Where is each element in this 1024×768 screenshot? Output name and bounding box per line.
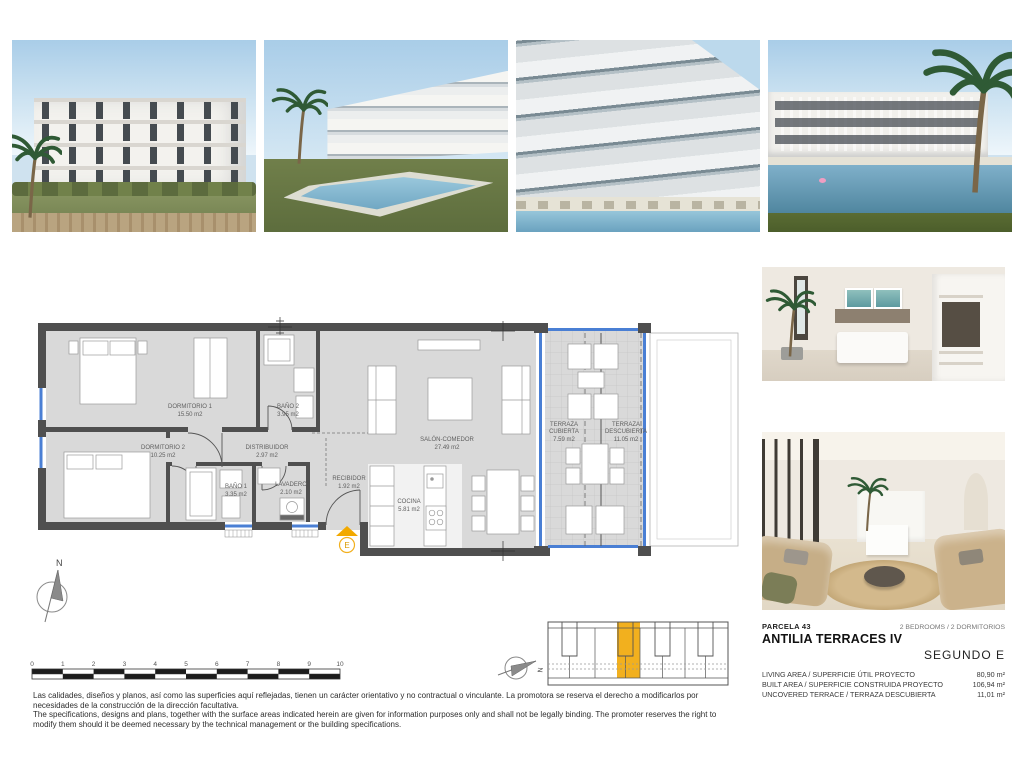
svg-text:10.25 m2: 10.25 m2 bbox=[150, 453, 176, 459]
svg-text:LAVADERO: LAVADERO bbox=[275, 482, 307, 488]
disclaimer-en: The specifications, designs and plans, t… bbox=[33, 710, 733, 729]
svg-text:0: 0 bbox=[30, 661, 34, 668]
area-row-built: BUILT AREA / SUPERFICIE CONSTRUIDA PROYE… bbox=[762, 680, 1005, 690]
cushion bbox=[958, 548, 984, 565]
area-label: UNCOVERED TERRACE / TERRAZA DESCUBIERTA bbox=[762, 690, 936, 700]
svg-text:SALÓN-COMEDOR: SALÓN-COMEDOR bbox=[420, 436, 474, 443]
unit-info-panel: PARCELA 43 2 BEDROOMS / 2 DORMITORIOS AN… bbox=[762, 622, 1005, 701]
svg-text:N: N bbox=[536, 667, 543, 673]
key-plan bbox=[548, 622, 728, 685]
houseplant bbox=[764, 287, 816, 359]
svg-text:DESCUBIERTA: DESCUBIERTA bbox=[605, 429, 647, 435]
photo-terraces-closeup bbox=[516, 40, 760, 232]
room-label-terraza-cubierta: TERRAZACUBIERTA7.59 m2 bbox=[549, 422, 579, 443]
photo-living-room-interior bbox=[762, 432, 1005, 610]
area-table: LIVING AREA / SUPERFICIE ÚTIL PROYECTO 8… bbox=[762, 670, 1005, 701]
svg-text:CUBIERTA: CUBIERTA bbox=[549, 429, 579, 435]
swimming-pool bbox=[516, 211, 760, 232]
svg-text:10: 10 bbox=[336, 661, 344, 668]
svg-text:3.95 m2: 3.95 m2 bbox=[277, 412, 299, 418]
photo-building-pool-front bbox=[768, 40, 1012, 232]
svg-text:RECIBIDOR: RECIBIDOR bbox=[332, 476, 366, 482]
parcel-label: PARCELA 43 bbox=[762, 622, 811, 631]
svg-text:DORMITORIO 2: DORMITORIO 2 bbox=[141, 445, 186, 451]
svg-text:15.50 m2: 15.50 m2 bbox=[177, 412, 203, 418]
coffee-table bbox=[864, 566, 905, 587]
north-compass-icon: N bbox=[37, 558, 67, 622]
svg-text:5: 5 bbox=[184, 661, 188, 668]
cushion bbox=[783, 548, 809, 565]
uncovered-terrace-outline bbox=[650, 333, 738, 546]
wall-art bbox=[845, 288, 873, 309]
svg-text:3.35 m2: 3.35 m2 bbox=[225, 492, 247, 498]
svg-text:2.97 m2: 2.97 m2 bbox=[256, 453, 278, 459]
building-facade bbox=[34, 98, 246, 190]
sofa bbox=[933, 527, 1005, 610]
svg-text:2.10 m2: 2.10 m2 bbox=[280, 490, 302, 496]
wardrobe bbox=[932, 274, 1005, 381]
svg-text:3: 3 bbox=[123, 661, 127, 668]
svg-text:TERRAZA: TERRAZA bbox=[612, 422, 640, 428]
palm-tree bbox=[270, 82, 328, 170]
disclaimer-es: Las calidades, diseños y planos, así com… bbox=[33, 691, 733, 710]
legal-disclaimer: Las calidades, diseños y planos, así com… bbox=[33, 691, 733, 729]
svg-text:2: 2 bbox=[92, 661, 96, 668]
svg-text:7: 7 bbox=[246, 661, 250, 668]
svg-text:8: 8 bbox=[277, 661, 281, 668]
area-value: 11,01 m² bbox=[977, 690, 1005, 700]
svg-text:BAÑO 1: BAÑO 1 bbox=[225, 483, 248, 490]
photo-building-pool-angle bbox=[264, 40, 508, 232]
hanging-clothes bbox=[942, 302, 980, 347]
area-value: 106,94 m² bbox=[973, 680, 1005, 690]
headboard bbox=[835, 309, 910, 323]
wall-art bbox=[874, 288, 902, 309]
bed bbox=[837, 332, 907, 363]
area-row-uncovered: UNCOVERED TERRACE / TERRAZA DESCUBIERTA … bbox=[762, 690, 1005, 700]
svg-text:TERRAZA: TERRAZA bbox=[550, 422, 578, 428]
svg-text:6: 6 bbox=[215, 661, 219, 668]
area-row-living: LIVING AREA / SUPERFICIE ÚTIL PROYECTO 8… bbox=[762, 670, 1005, 680]
svg-text:BAÑO 2: BAÑO 2 bbox=[277, 403, 300, 410]
svg-text:27.49 m2: 27.49 m2 bbox=[434, 445, 460, 451]
project-title: ANTILIA TERRACES IV bbox=[762, 632, 1005, 646]
floor-plan: DORMITORIO 115.50 m2 BAÑO 23.95 m2 DORMI… bbox=[30, 315, 745, 570]
wall-niche bbox=[964, 473, 988, 530]
highlighted-unit bbox=[617, 622, 640, 678]
svg-text:1.92 m2: 1.92 m2 bbox=[338, 484, 360, 490]
area-label: LIVING AREA / SUPERFICIE ÚTIL PROYECTO bbox=[762, 670, 915, 680]
palm-tree bbox=[12, 128, 62, 224]
houseplant bbox=[845, 475, 889, 533]
svg-text:COCINA: COCINA bbox=[397, 499, 420, 505]
area-value: 80,90 m² bbox=[977, 670, 1005, 680]
keyplan-north-compass-icon: N bbox=[498, 657, 543, 679]
svg-text:DORMITORIO 1: DORMITORIO 1 bbox=[168, 404, 213, 410]
svg-text:7.59 m2: 7.59 m2 bbox=[553, 437, 575, 443]
bedrooms-label: 2 BEDROOMS / 2 DORMITORIOS bbox=[900, 624, 1005, 631]
svg-text:1: 1 bbox=[61, 661, 65, 668]
lawn bbox=[768, 213, 1012, 232]
palm-tree bbox=[920, 40, 1012, 206]
scale-bar: 0 1 2 3 4 5 6 7 8 9 10 bbox=[30, 661, 344, 679]
area-label: BUILT AREA / SUPERFICIE CONSTRUIDA PROYE… bbox=[762, 680, 943, 690]
svg-text:N: N bbox=[56, 558, 63, 568]
photo-bedroom-interior bbox=[762, 267, 1005, 381]
photo-building-front-facade bbox=[12, 40, 256, 232]
svg-text:9: 9 bbox=[307, 661, 311, 668]
svg-text:5.81 m2: 5.81 m2 bbox=[398, 507, 420, 513]
svg-text:4: 4 bbox=[153, 661, 157, 668]
svg-text:DISTRIBUIDOR: DISTRIBUIDOR bbox=[245, 445, 289, 451]
svg-text:11.05 m2: 11.05 m2 bbox=[614, 437, 639, 443]
sun-loungers bbox=[516, 201, 760, 209]
unit-name: SEGUNDO E bbox=[762, 648, 1005, 662]
